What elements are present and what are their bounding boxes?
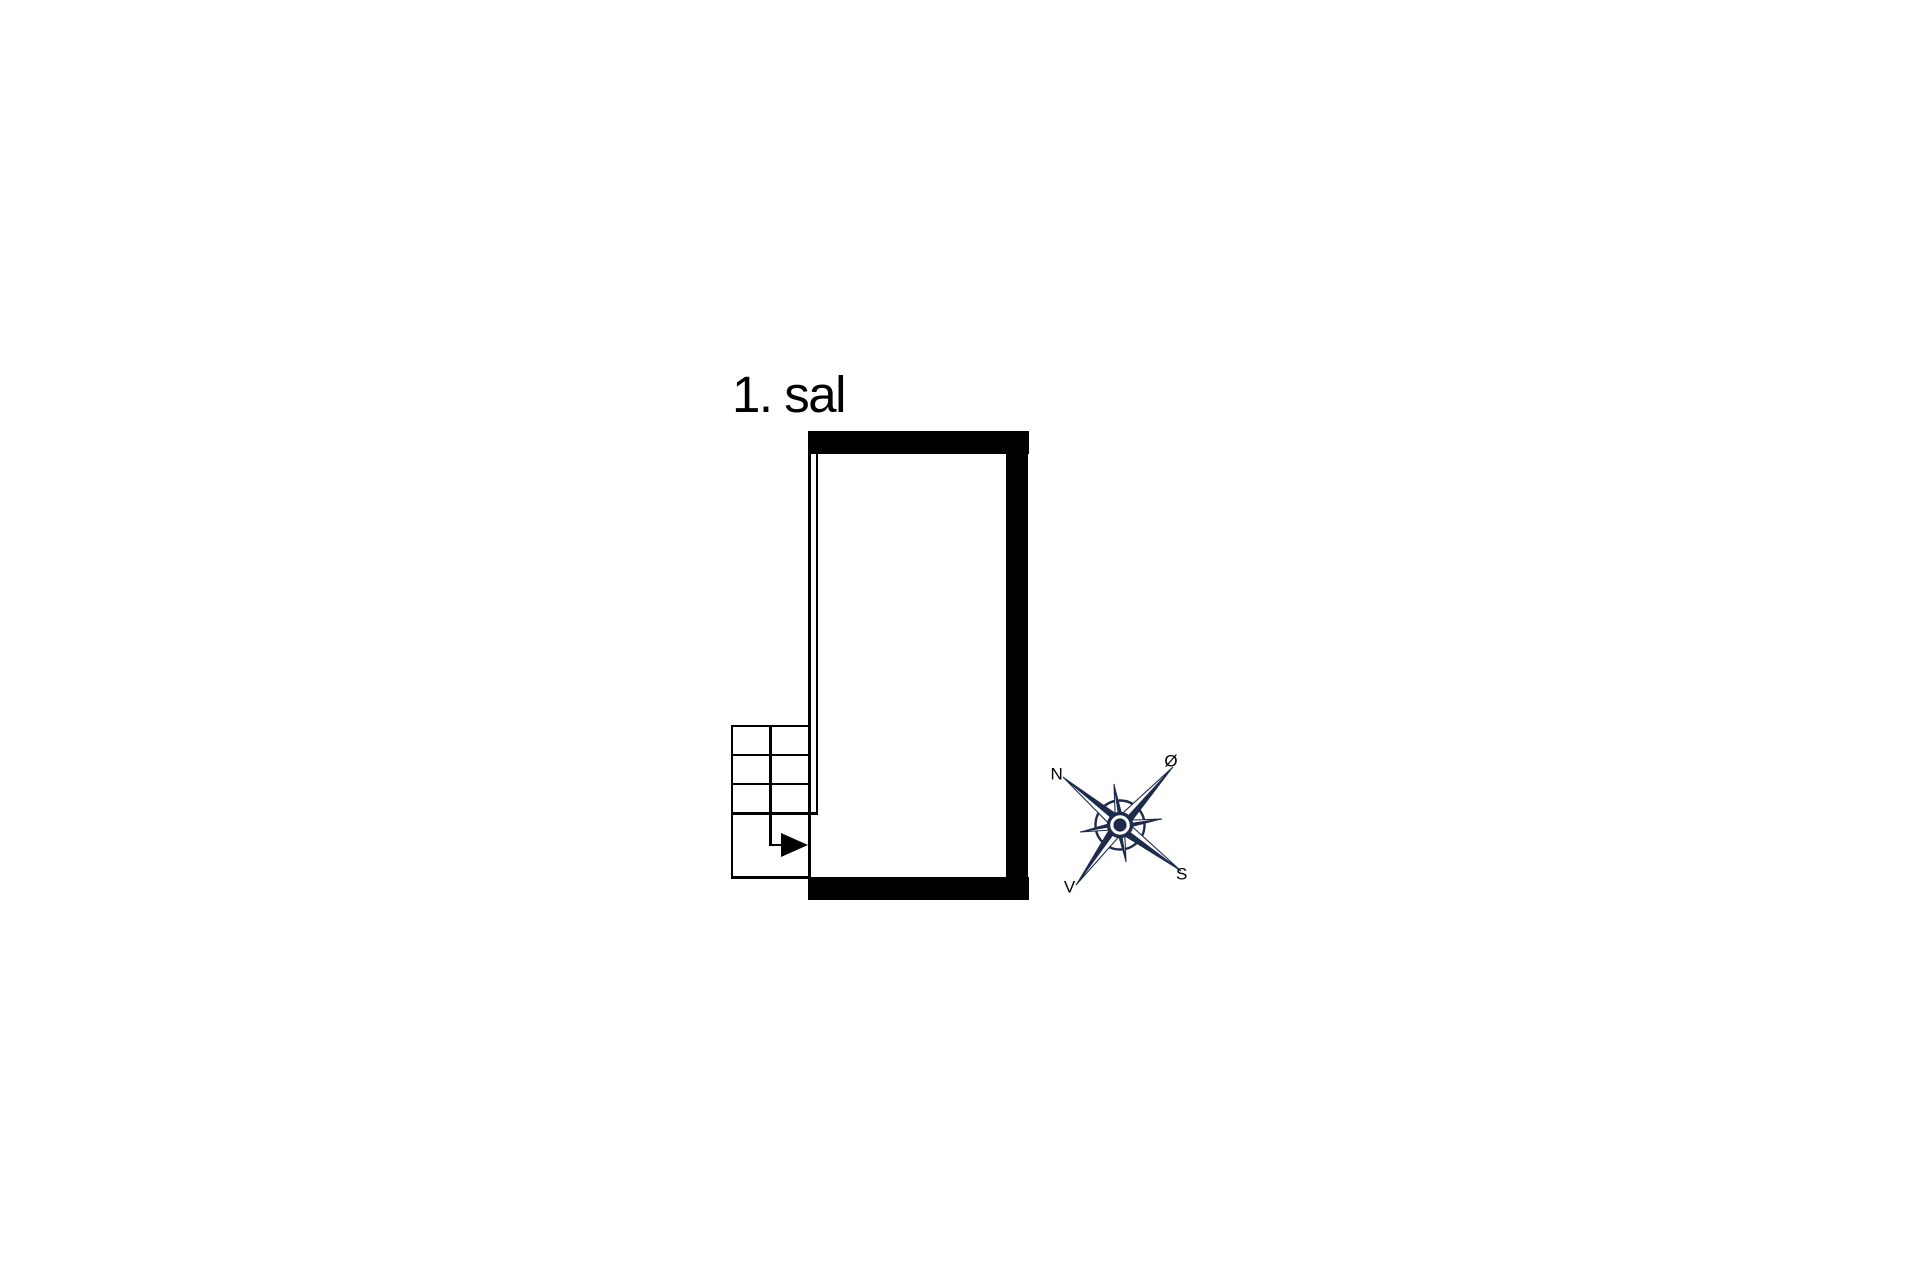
compass-hub — [1107, 812, 1133, 838]
floor-plan-page: 1. sal — [0, 0, 1920, 1280]
stair-outline-line — [731, 725, 733, 879]
stair-landing-line — [731, 812, 819, 814]
compass-label-north: N — [1051, 766, 1063, 783]
wall-west-inner-line — [816, 453, 818, 815]
wall-south — [808, 877, 1029, 900]
wall-east — [1006, 431, 1028, 900]
floor-title: 1. sal — [732, 369, 845, 420]
wall-north — [808, 431, 1029, 454]
compass-rose-icon — [1055, 748, 1190, 903]
compass-label-west: V — [1064, 879, 1075, 896]
stair-divider-line — [769, 725, 771, 846]
arrow-head-icon — [781, 833, 808, 857]
compass-label-south: S — [1176, 866, 1187, 883]
compass-label-east: Ø — [1164, 752, 1177, 769]
stair-outline-line — [731, 876, 811, 878]
